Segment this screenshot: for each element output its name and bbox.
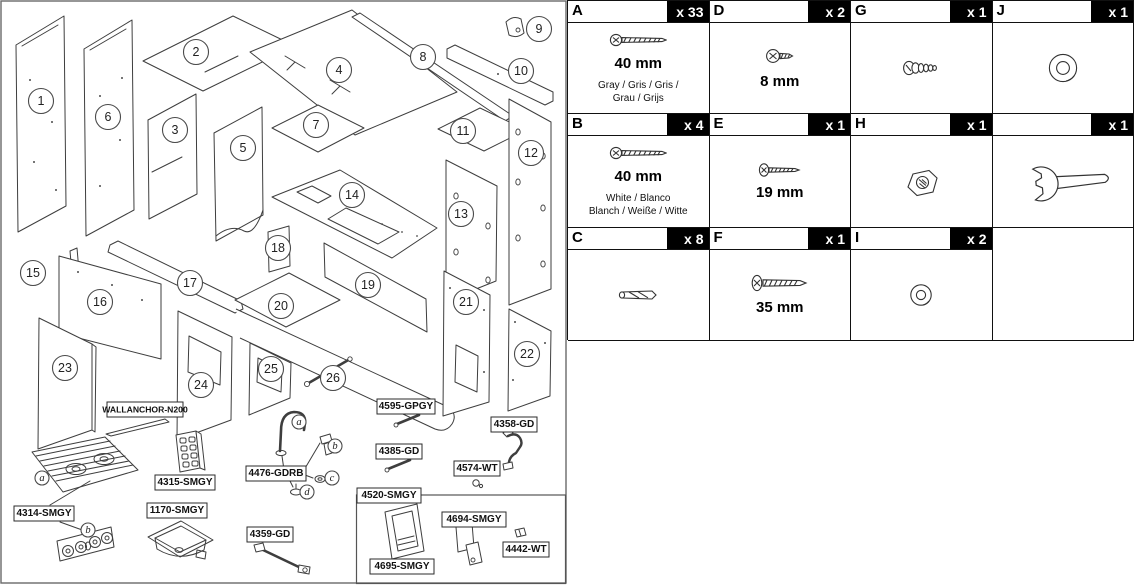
part-number-bubble-2: 2 <box>184 40 209 65</box>
part-number-bubble-10: 10 <box>509 59 534 84</box>
hardware-letter: A <box>568 1 667 22</box>
hardware-cell-D: Dx 28 mm <box>710 1 852 114</box>
hardware-cell-A: Ax 3340 mmGray / Gris / Gris / Grau / Gr… <box>568 1 710 114</box>
hardware-letter: F <box>710 228 809 249</box>
hardware-cell-body <box>568 250 709 340</box>
hardware-cell-body <box>993 136 1134 227</box>
hardware-letter <box>993 114 1092 135</box>
part-number-text: 4 <box>336 63 343 77</box>
hardware-cell-header: Jx 1 <box>993 1 1134 23</box>
part-number-text: 18 <box>271 241 285 255</box>
part-number-text: 8 <box>420 50 427 64</box>
long-screw-icon <box>609 32 667 48</box>
part-label-4358-GD: 4358-GD <box>491 417 537 432</box>
hardware-letter: E <box>710 114 809 135</box>
thick-screw-icon <box>750 274 810 292</box>
clip-4442-part <box>515 528 526 537</box>
part-number-bubble-9: 9 <box>527 17 552 42</box>
hardware-cell-C: Cx 8 <box>568 228 710 341</box>
part-number-bubble-17: 17 <box>178 271 203 296</box>
part-number-bubble-23: 23 <box>53 356 78 381</box>
part-number-text: 6 <box>105 110 112 124</box>
part-number-text: 19 <box>361 278 375 292</box>
callout-letter-text: b <box>85 525 90 536</box>
hardware-cell-header: Cx 8 <box>568 228 709 250</box>
hardware-cell-body: 19 mm <box>710 136 851 227</box>
hardware-cell-body <box>993 23 1134 113</box>
callout-letter-text: a <box>296 417 301 428</box>
part-number-bubble-25: 25 <box>259 357 284 382</box>
part-number-text: 26 <box>326 371 340 385</box>
part-number-bubble-22: 22 <box>515 342 540 367</box>
part-number-bubble-4: 4 <box>327 58 352 83</box>
hardware-cell-J: Jx 1 <box>993 1 1134 114</box>
hardware-cell-header: Dx 2 <box>710 1 851 23</box>
part-label-4694-SMGY: 4694-SMGY <box>442 512 506 527</box>
hardware-cell-I: Ix 2 <box>851 228 993 341</box>
hardware-size-label: 35 mm <box>756 299 804 316</box>
part-number-bubble-21: 21 <box>454 290 479 315</box>
part-number-text: 20 <box>274 299 288 313</box>
quantity-badge: x 1 <box>1091 114 1133 135</box>
long-screw-icon <box>609 145 667 161</box>
part-number-text: 24 <box>194 378 208 392</box>
hardware-cell-header: Ix 2 <box>851 228 992 250</box>
part-number-text: 5 <box>240 141 247 155</box>
callout-letter-text: b <box>332 441 337 452</box>
part-label-text: 1170-SMGY <box>150 505 205 516</box>
vent-grille-part <box>176 431 205 472</box>
part-label-4476-GDRB: 4476-GDRB <box>246 466 306 481</box>
quantity-badge: x 2 <box>808 1 850 22</box>
hardware-letter: D <box>710 1 809 22</box>
hardware-cell-header: Bx 4 <box>568 114 709 136</box>
part-label-text: 4314-SMGY <box>16 508 71 519</box>
hardware-cell-B: Bx 440 mmWhite / Blanco Blanch / Weiße /… <box>568 114 710 228</box>
part-number-bubble-24: 24 <box>189 373 214 398</box>
quantity-badge: x 8 <box>667 228 709 249</box>
short-screw-icon <box>765 46 795 66</box>
hardware-cell-F: Fx 135 mm <box>710 228 852 341</box>
part-number-text: 16 <box>93 295 107 309</box>
part-label-text: 4358-GD <box>494 419 535 430</box>
quantity-badge: x 2 <box>950 228 992 249</box>
hex-nut-icon <box>902 166 940 198</box>
hardware-cell-body <box>851 250 992 340</box>
threaded-fitting-icon <box>902 58 940 78</box>
part-label-WALLANCHOR-N200: WALLANCHOR-N200 <box>102 402 188 417</box>
bracket-9-shape <box>506 18 524 37</box>
letter-callout-a: a <box>35 471 49 485</box>
part-number-text: 7 <box>313 118 320 132</box>
part-label-text: 4595-GPGY <box>379 401 434 412</box>
hardware-cell-header: Ex 1 <box>710 114 851 136</box>
part-number-text: 22 <box>520 347 534 361</box>
part-number-text: 9 <box>536 22 543 36</box>
part-label-text: 4385-GD <box>379 446 420 457</box>
part-label-4315-SMGY: 4315-SMGY <box>155 475 215 490</box>
exploded-view-canvas: 1234567891011121314151617181920212223242… <box>0 0 567 585</box>
hardware-cell-body: 40 mmGray / Gris / Gris / Grau / Grijs <box>568 23 709 113</box>
part-number-bubble-1: 1 <box>29 89 54 114</box>
hardware-cell-body: 40 mmWhite / Blanco Blanch / Weiße / Wit… <box>568 136 709 227</box>
panel-1-shape <box>16 16 66 232</box>
part-label-4520-SMGY: 4520-SMGY <box>357 488 421 503</box>
letter-callout-b: b <box>81 523 95 537</box>
part-number-text: 3 <box>172 123 179 137</box>
part-number-text: 15 <box>26 266 40 280</box>
part-label-text: 4476-GDRB <box>248 468 303 479</box>
part-number-bubble-13: 13 <box>449 202 474 227</box>
wood-dowel-icon <box>616 287 660 303</box>
quantity-badge: x 1 <box>808 228 850 249</box>
panel-12-shape <box>509 99 551 305</box>
part-number-bubble-7: 7 <box>304 113 329 138</box>
faucet-nut-part <box>315 476 325 483</box>
hardware-letter: J <box>993 1 1092 22</box>
hardware-letter: C <box>568 228 667 249</box>
hardware-cell-body <box>851 136 992 227</box>
part-number-bubble-20: 20 <box>269 294 294 319</box>
part-label-4442-WT: 4442-WT <box>503 542 549 557</box>
part-number-text: 23 <box>58 361 72 375</box>
part-number-text: 25 <box>264 362 278 376</box>
hardware-letter: G <box>851 1 950 22</box>
quantity-badge: x 1 <box>808 114 850 135</box>
part-number-text: 13 <box>454 207 468 221</box>
letter-callout-d: d <box>300 485 314 499</box>
quantity-badge: x 33 <box>667 1 709 22</box>
part-label-text: 4442-WT <box>505 544 546 555</box>
hardware-cell-E: Ex 119 mm <box>710 114 852 228</box>
hardware-size-label: 8 mm <box>760 73 799 90</box>
part-label-text: 4694-SMGY <box>446 514 501 525</box>
part-number-bubble-11: 11 <box>451 119 476 144</box>
part-number-text: 2 <box>193 45 200 59</box>
hardware-size-label: 40 mm <box>614 168 662 185</box>
part-label-4695-SMGY: 4695-SMGY <box>370 559 434 574</box>
hardware-cell-wrench: x 1 <box>993 114 1134 228</box>
hardware-table: Ax 3340 mmGray / Gris / Gris / Grau / Gr… <box>567 0 1134 340</box>
letter-callout-b: b <box>328 439 342 453</box>
hardware-color-note: White / Blanco Blanch / Weiße / Witte <box>589 192 688 218</box>
hardware-cell-body: 8 mm <box>710 23 851 113</box>
door-frame-4695-part <box>385 504 424 559</box>
hardware-cell-H: Hx 1 <box>851 114 993 228</box>
hardware-cell-body: 35 mm <box>710 250 851 340</box>
part-number-text: 12 <box>524 146 538 160</box>
part-label-text: WALLANCHOR-N200 <box>102 405 188 415</box>
hardware-letter: I <box>851 228 950 249</box>
part-number-bubble-5: 5 <box>231 136 256 161</box>
hardware-cell-header: Gx 1 <box>851 1 992 23</box>
part-label-4359-GD: 4359-GD <box>247 527 293 542</box>
hardware-cell-header: Fx 1 <box>710 228 851 250</box>
part-label-text: 4359-GD <box>250 529 291 540</box>
part-number-bubble-18: 18 <box>266 236 291 261</box>
part-label-text: 4315-SMGY <box>157 477 212 488</box>
small-washer-icon <box>907 281 935 309</box>
part-number-text: 1 <box>38 94 45 108</box>
hardware-cell-empty <box>993 228 1134 341</box>
part-label-text: 4695-SMGY <box>374 561 429 572</box>
part-number-bubble-26: 26 <box>321 366 346 391</box>
exploded-parts-diagram: 1234567891011121314151617181920212223242… <box>0 0 567 585</box>
quantity-badge: x 1 <box>950 114 992 135</box>
letter-callout-a: a <box>292 415 306 429</box>
letter-callout-c: c <box>325 471 339 485</box>
part-number-bubble-16: 16 <box>88 290 113 315</box>
hardware-cell-header: x 1 <box>993 114 1134 136</box>
callout-letter-text: c <box>330 473 335 484</box>
hardware-cell-body <box>851 23 992 113</box>
part-number-bubble-12: 12 <box>519 141 544 166</box>
part-number-bubble-3: 3 <box>163 118 188 143</box>
hardware-color-note: Gray / Gris / Gris / Grau / Grijs <box>598 79 679 105</box>
part-label-4595-GPGY: 4595-GPGY <box>377 399 435 414</box>
part-number-bubble-8: 8 <box>411 45 436 70</box>
part-label-4385-GD: 4385-GD <box>376 444 422 459</box>
hardware-cell-header: Hx 1 <box>851 114 992 136</box>
part-label-4314-SMGY: 4314-SMGY <box>14 506 74 521</box>
part-label-4574-WT: 4574-WT <box>454 461 500 476</box>
hardware-letter: B <box>568 114 667 135</box>
hardware-size-label: 40 mm <box>614 55 662 72</box>
hardware-cell-header: Ax 33 <box>568 1 709 23</box>
callout-letter-text: a <box>39 473 44 484</box>
part-number-text: 10 <box>514 64 528 78</box>
part-number-bubble-14: 14 <box>340 183 365 208</box>
hardware-cell-G: Gx 1 <box>851 1 993 114</box>
part-number-text: 14 <box>345 188 359 202</box>
quantity-badge: x 1 <box>1091 1 1133 22</box>
hardware-cell-body <box>993 228 1134 340</box>
large-washer-icon <box>1045 50 1081 86</box>
part-label-text: 4520-SMGY <box>361 490 416 501</box>
part-number-bubble-15: 15 <box>21 261 46 286</box>
callout-letter-text: d <box>304 487 310 498</box>
part-label-1170-SMGY: 1170-SMGY <box>147 503 207 518</box>
hardware-letter: H <box>851 114 950 135</box>
wrench-icon <box>1013 155 1113 209</box>
quantity-badge: x 1 <box>950 1 992 22</box>
door-23-edge <box>92 344 96 432</box>
part-label-text: 4574-WT <box>456 463 497 474</box>
part-number-text: 11 <box>457 124 470 138</box>
part-number-text: 21 <box>459 295 473 309</box>
quantity-badge: x 4 <box>667 114 709 135</box>
hardware-size-label: 19 mm <box>756 184 804 201</box>
part-number-bubble-19: 19 <box>356 273 381 298</box>
medium-screw-icon <box>758 163 802 177</box>
part-number-bubble-6: 6 <box>96 105 121 130</box>
part-number-text: 17 <box>183 276 197 290</box>
